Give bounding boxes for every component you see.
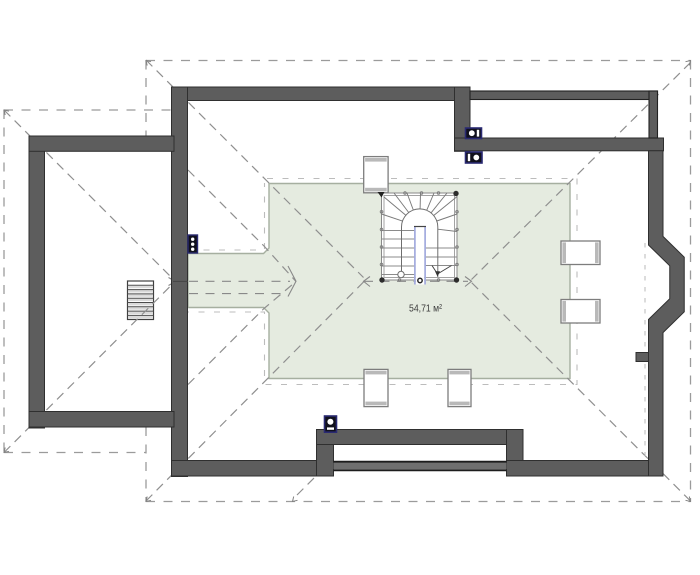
svg-text:54,71 м²: 54,71 м² — [409, 303, 442, 315]
